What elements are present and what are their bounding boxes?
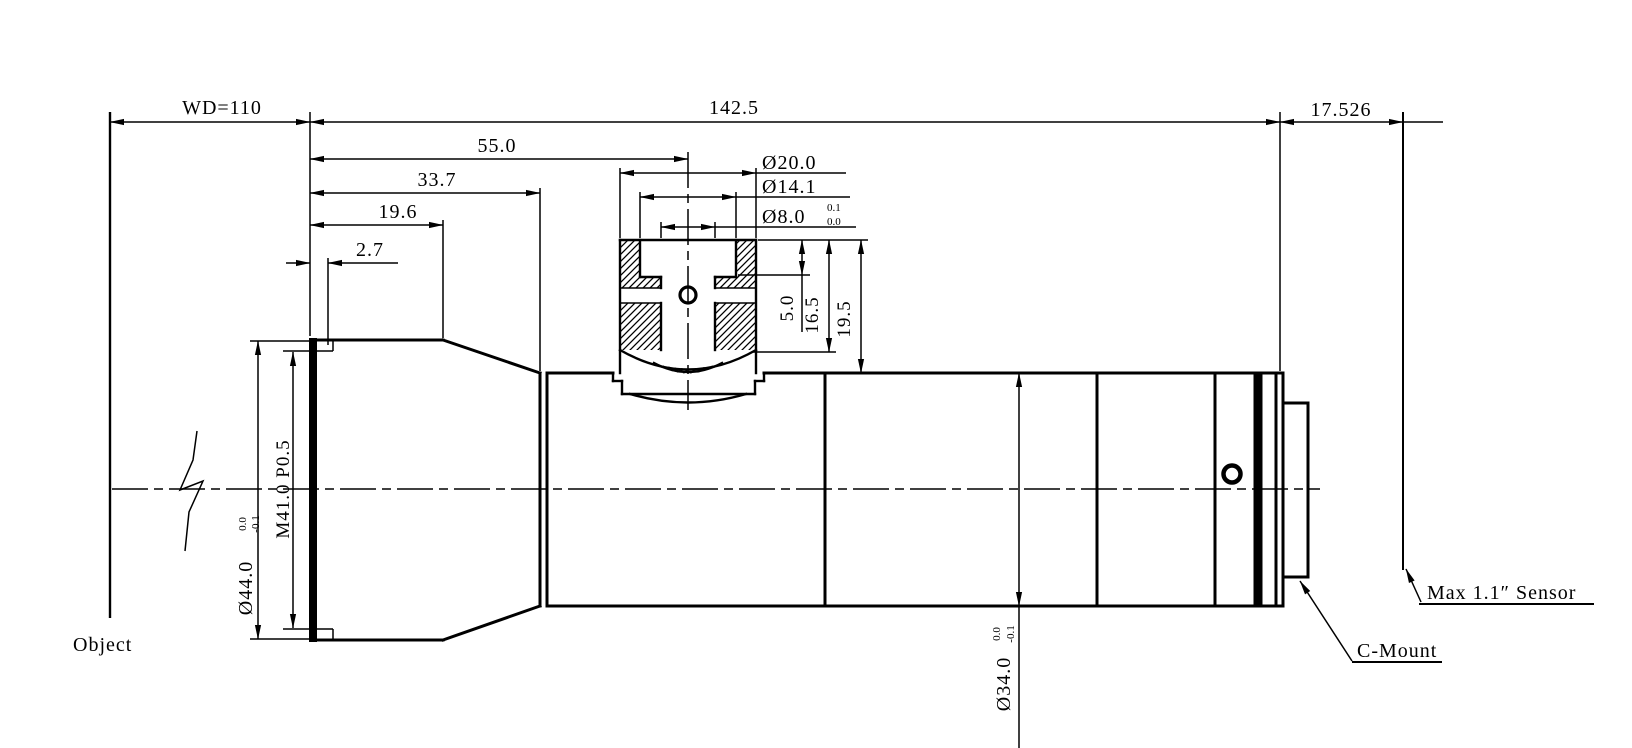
- dim-front-dia-tol-lo: -0.1: [250, 515, 262, 532]
- break-symbol: [180, 431, 203, 551]
- dim-barrel-dia-tol-hi: 0.0: [991, 627, 1003, 641]
- hatch-wall-top-left: [620, 241, 640, 277]
- taper-top: [443, 340, 540, 373]
- hatch-wall-low-left: [620, 303, 661, 350]
- dim-port-bore-tol-lo: 0.0: [827, 216, 841, 228]
- dim-front-dia-tol-hi: 0.0: [237, 517, 249, 531]
- dimension-text: WD=110 142.5 17.526 55.0 33.7 19.6 2.7 Ø…: [182, 97, 1371, 711]
- dim-19-6-text: 19.6: [379, 201, 418, 223]
- cmount-label: C-Mount: [1357, 640, 1437, 662]
- illumination-port-section: [613, 240, 764, 403]
- hatch-step-right: [715, 277, 756, 288]
- dim-port-bore-text: Ø8.0: [762, 206, 805, 228]
- dim-thread-text: M41.0 P0.5: [273, 439, 294, 538]
- hatch-wall-top-right: [736, 241, 756, 277]
- technical-drawing: WD=110 142.5 17.526 55.0 33.7 19.6 2.7 Ø…: [0, 0, 1632, 748]
- dim-55-text: 55.0: [478, 135, 517, 157]
- taper-bottom: [443, 606, 540, 640]
- object-label: Object: [73, 634, 132, 656]
- leader-sensor: [1406, 569, 1421, 602]
- dim-barrel-dia-tol-lo: -0.1: [1005, 625, 1017, 642]
- dim-port-od-text: Ø20.0: [762, 152, 816, 174]
- dim-5-text: 5.0: [777, 295, 798, 322]
- dim-flange-text: 17.526: [1311, 99, 1372, 121]
- sensor-label: Max 1.1″ Sensor: [1427, 582, 1576, 604]
- dim-33-7-text: 33.7: [418, 169, 457, 191]
- leader-cmount: [1300, 581, 1352, 661]
- dim-port-mid-text: Ø14.1: [762, 176, 816, 198]
- hatch-step-left: [620, 277, 661, 288]
- dim-barrel-dia-text: Ø34.0: [993, 657, 1015, 711]
- dim-front-dia-text: Ø44.0: [235, 561, 257, 615]
- dim-19-5-text: 19.5: [834, 300, 855, 337]
- hatch-wall-low-right: [715, 303, 756, 350]
- dim-overall-text: 142.5: [709, 97, 759, 119]
- drawing-canvas: WD=110 142.5 17.526 55.0 33.7 19.6 2.7 Ø…: [0, 0, 1632, 748]
- dim-wd-text: WD=110: [182, 97, 262, 119]
- set-screw: [1224, 466, 1241, 483]
- dim-2-7-text: 2.7: [356, 239, 384, 261]
- dim-port-bore-tol-hi: 0.1: [827, 202, 841, 214]
- lens-body: [313, 338, 1308, 642]
- dim-16-5-text: 16.5: [802, 296, 823, 333]
